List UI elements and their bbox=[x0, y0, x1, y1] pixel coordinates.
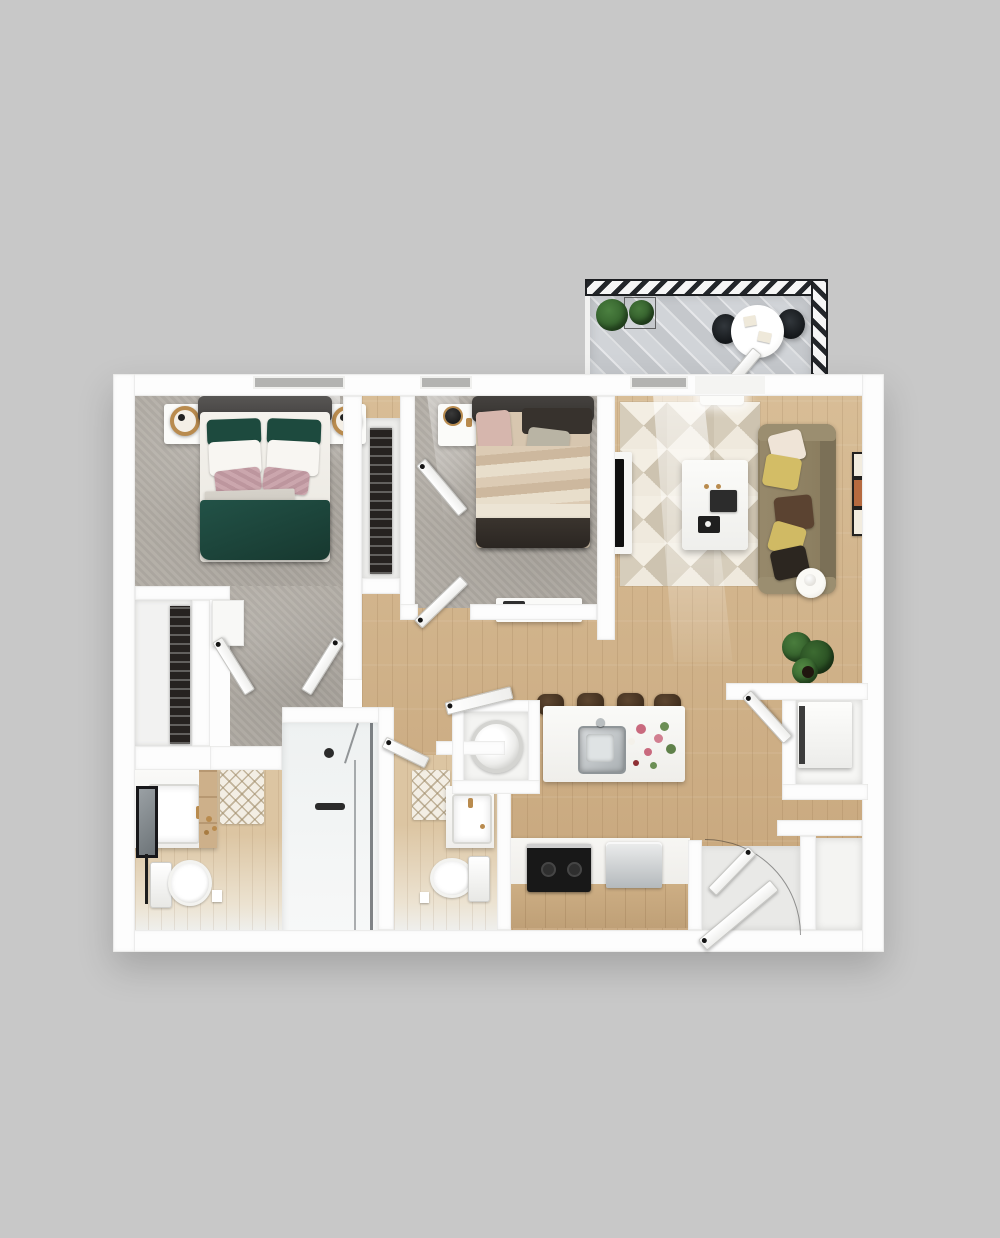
gold-decor bbox=[204, 830, 209, 835]
toilet-tank bbox=[468, 856, 490, 902]
entry-closet-interior bbox=[816, 838, 862, 930]
water-heater-vent bbox=[799, 706, 805, 764]
balcony-door-threshold bbox=[695, 376, 765, 394]
burner-icon bbox=[541, 862, 556, 877]
brass-faucet-icon bbox=[468, 798, 473, 808]
faucet-icon bbox=[596, 718, 605, 727]
bath-mat bbox=[220, 770, 264, 824]
closet-clothes-rack bbox=[370, 428, 392, 574]
wall-exterior-left bbox=[113, 374, 135, 952]
wall-utility-bottom bbox=[782, 784, 868, 800]
flower-greenery bbox=[660, 722, 669, 731]
balcony-railing-right bbox=[811, 279, 828, 382]
gold-decor bbox=[704, 484, 709, 489]
wall-utility-left bbox=[782, 700, 796, 790]
toilet-paper bbox=[420, 892, 429, 903]
burner-icon bbox=[567, 862, 582, 877]
wall-laundry-left bbox=[452, 700, 464, 792]
shower-glass-panel bbox=[370, 723, 373, 937]
window-glass-living bbox=[630, 376, 688, 389]
flower-decor bbox=[633, 760, 639, 766]
flower-greenery bbox=[650, 762, 657, 769]
towel-bar bbox=[145, 854, 148, 904]
flower-decor bbox=[636, 724, 646, 734]
wall-laundry-bottom bbox=[452, 780, 540, 794]
wall-exterior-top bbox=[113, 374, 884, 396]
balcony-railing-top bbox=[585, 279, 828, 296]
flower-greenery bbox=[666, 744, 676, 754]
leaning-mirror bbox=[136, 786, 158, 858]
brass-lamp-icon bbox=[170, 406, 200, 436]
tablet-icon bbox=[710, 490, 737, 512]
gold-decor bbox=[466, 418, 472, 427]
wall-bedroom2-bottom-b bbox=[470, 604, 597, 620]
wall-entry-closet-left bbox=[800, 836, 816, 930]
shower-glass-panel bbox=[354, 760, 356, 937]
gold-decor bbox=[206, 816, 212, 822]
book-logo-dot bbox=[705, 521, 711, 527]
balcony-plant-icon bbox=[629, 300, 654, 325]
window-glass-bed1 bbox=[253, 376, 345, 389]
pillow-yellow bbox=[761, 453, 802, 491]
walkin-clothes-rack bbox=[170, 606, 190, 744]
vanity-drawers bbox=[199, 768, 217, 848]
wall-kitchen-end bbox=[688, 840, 702, 930]
wall-bathroom2-top bbox=[436, 741, 505, 755]
bistro-table bbox=[731, 305, 784, 358]
balcony-plant-icon bbox=[596, 299, 628, 331]
balcony-edge bbox=[585, 296, 590, 382]
plant-pot bbox=[802, 666, 814, 678]
sink-basin bbox=[586, 734, 614, 762]
wall-exterior-right bbox=[862, 374, 884, 952]
black-lamp-icon bbox=[445, 408, 461, 424]
wall-bathroom2-right bbox=[497, 788, 511, 930]
shower-fixture-bar bbox=[315, 803, 345, 810]
range-back-edge bbox=[527, 844, 591, 848]
toilet-bowl bbox=[168, 860, 212, 906]
table-setting bbox=[743, 315, 757, 327]
gold-decor bbox=[716, 484, 721, 489]
toilet-paper bbox=[212, 890, 222, 902]
bed1-green-duvet bbox=[200, 500, 330, 560]
wall-bedroom2-left bbox=[400, 396, 415, 608]
flower-decor bbox=[644, 748, 652, 756]
wall-shower-top bbox=[282, 707, 380, 723]
water-heater-unit bbox=[798, 702, 852, 768]
bed2-footer-blanket bbox=[476, 518, 590, 548]
dishwasher bbox=[606, 842, 662, 888]
flower-decor bbox=[628, 738, 635, 745]
sofa-back-cushion bbox=[820, 430, 835, 588]
wall-walkin-top bbox=[135, 586, 230, 600]
wall-walkin-right bbox=[192, 600, 210, 746]
wall-bathroom1-top bbox=[210, 746, 282, 770]
gold-decor bbox=[212, 826, 217, 831]
bath-mat bbox=[412, 770, 450, 820]
pillow-blush bbox=[475, 410, 512, 451]
floor-plan-stage bbox=[0, 0, 1000, 1238]
shower-head-icon bbox=[324, 748, 334, 758]
wall-bedroom1-right bbox=[343, 396, 362, 680]
wall-entry-top bbox=[777, 820, 862, 836]
window-glass-bed2 bbox=[420, 376, 472, 389]
sphere-lamp-icon bbox=[804, 574, 816, 586]
lamp-center bbox=[178, 414, 185, 421]
wall-laundry-right bbox=[528, 700, 540, 792]
flower-decor bbox=[654, 734, 663, 743]
gold-decor bbox=[480, 824, 485, 829]
wall-bedroom2-living bbox=[597, 396, 615, 640]
wall-closet1-bottom bbox=[362, 578, 400, 594]
